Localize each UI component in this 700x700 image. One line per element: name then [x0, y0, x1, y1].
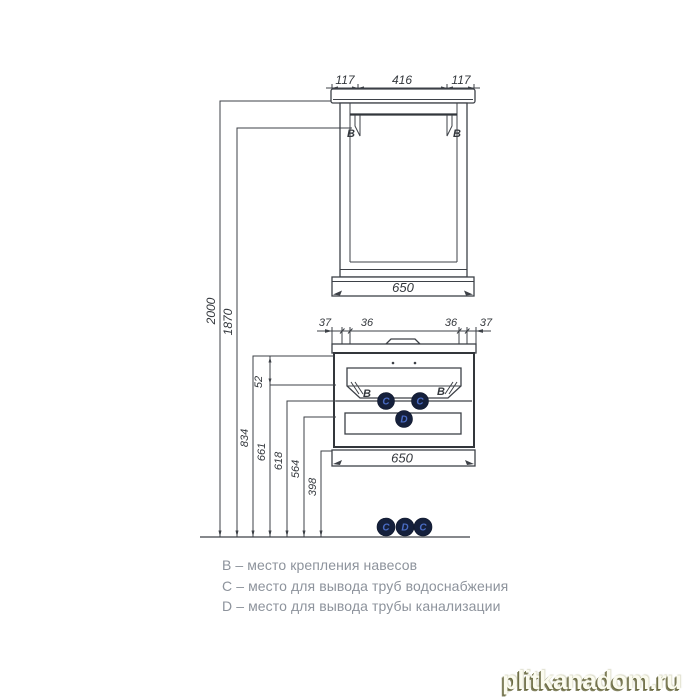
mirror-cabinet: 117 416 117 B B 650 — [326, 73, 480, 296]
installation-diagram: 117 416 117 B B 650 2000 1870 — [0, 0, 700, 700]
vanity-dim-37-left: 37 — [319, 317, 332, 329]
floor-outlet-markers: C D C — [377, 518, 432, 536]
height-661-label: 661 — [256, 443, 268, 461]
site-watermark: plitkanadom.ru — [502, 665, 681, 696]
floor-marker-d-label: D — [401, 523, 408, 534]
mirror-cornice — [331, 89, 475, 103]
mirror-dim-416: 416 — [392, 73, 412, 87]
vanity-dim-36-right: 36 — [445, 317, 458, 329]
vanity-counter-ledge — [386, 339, 420, 344]
height-2000-label: 2000 — [204, 297, 218, 325]
height-1870-label: 1870 — [221, 308, 235, 335]
height-834-label: 834 — [239, 429, 251, 447]
faucet-dot-right — [414, 362, 417, 365]
faucet-dot-left — [392, 362, 395, 365]
mirror-dim-117-left: 117 — [335, 73, 355, 87]
vanity-dim-36-left: 36 — [361, 317, 374, 329]
mirror-dim-117-right: 117 — [451, 73, 471, 87]
legend-item-d: D – место для вывода трубы канализации — [222, 596, 508, 617]
floor-marker-c-left-label: C — [382, 523, 390, 534]
height-398-label: 398 — [307, 477, 319, 496]
washbasin-cabinet: 37 36 36 37 B B C C — [317, 317, 493, 466]
legend-item-c: C – место для вывода труб водоснабжения — [222, 576, 508, 597]
floor-marker-c-right-label: C — [419, 523, 427, 534]
supply-marker-right-label: C — [416, 397, 424, 408]
vanity-width-label: 650 — [391, 451, 413, 466]
height-618-label: 618 — [273, 451, 285, 470]
vanity-mount-left-label: B — [363, 388, 371, 400]
mirror-mount-right-label: B — [453, 128, 461, 140]
cabinet-height-dimensions: 52 834 661 618 564 398 — [239, 356, 336, 537]
drain-marker-label: D — [400, 415, 407, 426]
mirror-mount-left-label: B — [347, 128, 355, 140]
height-564-label: 564 — [290, 460, 302, 478]
mirror-body — [340, 103, 467, 277]
vanity-dim-37-right: 37 — [480, 317, 493, 329]
legend-item-b: B – место крепления навесов — [222, 555, 508, 576]
supply-marker-left-label: C — [382, 397, 390, 408]
legend: B – место крепления навесов C – место дл… — [222, 555, 508, 617]
vanity-countertop — [332, 344, 476, 353]
vanity-mount-right-label: B — [437, 386, 445, 398]
offset-52-label: 52 — [253, 376, 265, 388]
mirror-width-label: 650 — [392, 280, 414, 295]
